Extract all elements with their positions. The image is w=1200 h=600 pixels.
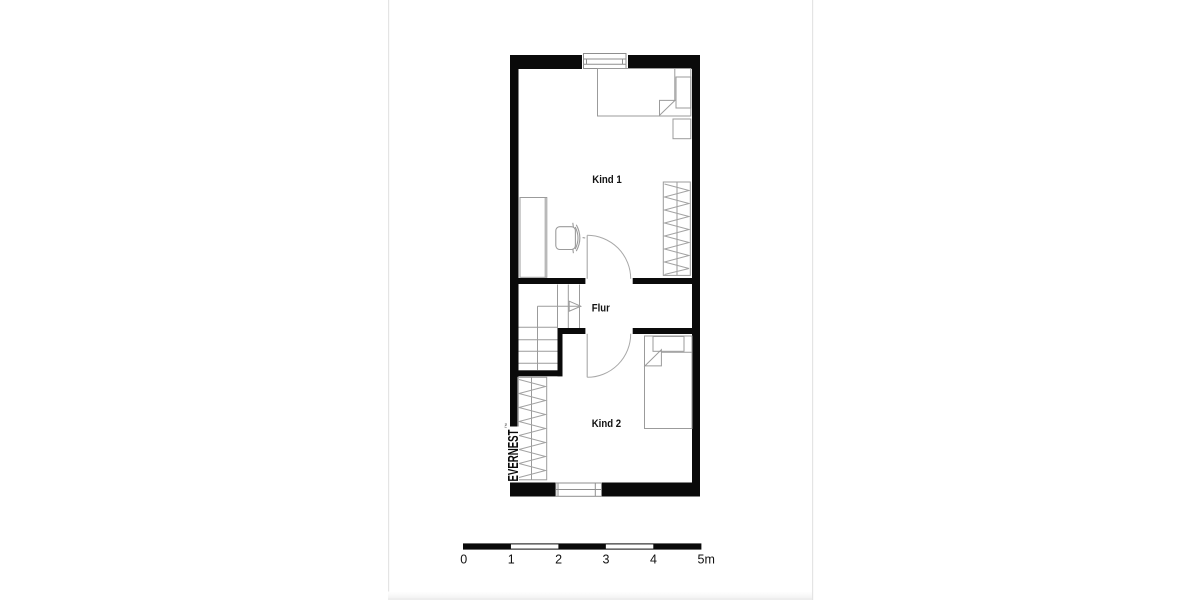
svg-text:4: 4 bbox=[650, 552, 657, 566]
svg-text:™: ™ bbox=[505, 423, 511, 429]
svg-text:2: 2 bbox=[555, 552, 562, 566]
svg-text:3: 3 bbox=[603, 552, 610, 566]
svg-text:Kind 1: Kind 1 bbox=[592, 174, 622, 186]
svg-text:Flur: Flur bbox=[592, 303, 611, 315]
svg-text:0: 0 bbox=[460, 552, 467, 566]
svg-text:1: 1 bbox=[508, 552, 515, 566]
svg-text:Kind 2: Kind 2 bbox=[592, 418, 621, 430]
svg-text:EVERNEST: EVERNEST bbox=[505, 430, 522, 482]
svg-text:5m: 5m bbox=[698, 552, 715, 566]
